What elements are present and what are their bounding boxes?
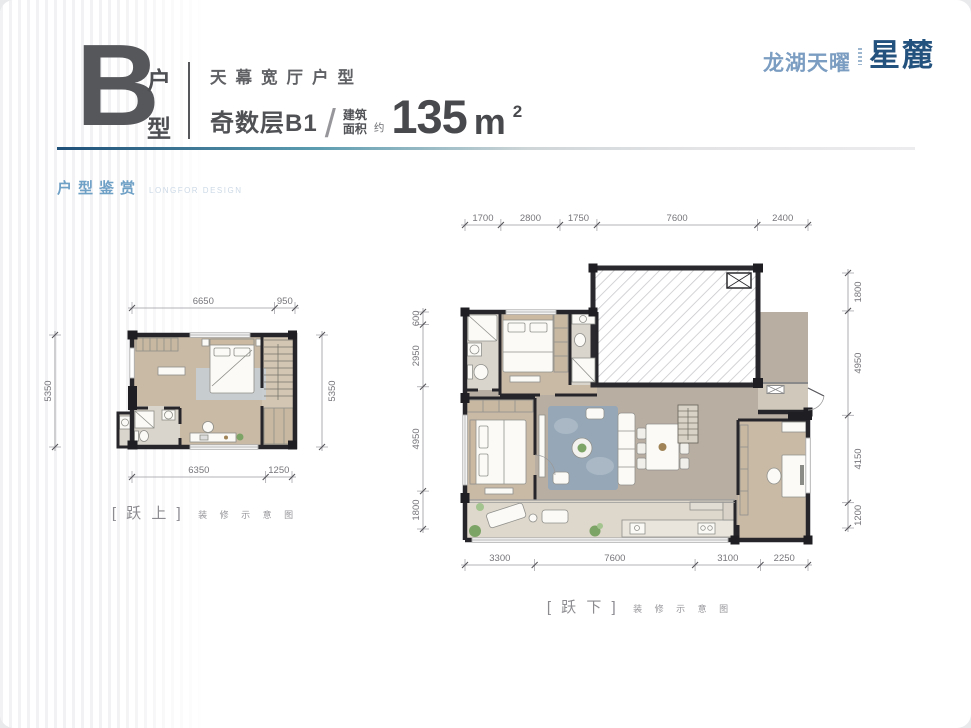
svg-text:3300: 3300 (489, 553, 510, 564)
area-label-stack: 建筑 面积 (343, 108, 367, 136)
lounge-chair (542, 510, 568, 523)
toilet (575, 334, 586, 347)
sink (470, 345, 479, 354)
svg-text:3100: 3100 (717, 553, 738, 564)
header-divider-rule (57, 147, 915, 150)
wardrobe (264, 408, 293, 444)
console-table (158, 367, 185, 375)
upper-plan-caption: [ 跃 上 ] 装 修 示 意 图 (40, 502, 370, 523)
toilet (474, 365, 488, 380)
unit-type-char-top: 户 (147, 61, 171, 96)
svg-text:1800: 1800 (411, 499, 422, 520)
armchair (553, 472, 569, 484)
lower-plan-caption: [ 跃 下 ] 装 修 示 意 图 (480, 596, 800, 617)
svg-text:6650: 6650 (193, 296, 214, 307)
floor-label: 奇数层B1 (210, 112, 318, 136)
section-heading: 户型鉴赏 LONGFOR DESIGN (57, 177, 242, 198)
upper-plan-note: 装 修 示 意 图 (198, 510, 298, 520)
svg-text:5350: 5350 (327, 380, 338, 401)
logo-seal-mark (858, 48, 862, 65)
lower-level-floorplan: 1700280017507600240033007600310022506002… (390, 200, 930, 640)
svg-text:1700: 1700 (472, 213, 493, 224)
svg-text:4150: 4150 (853, 448, 864, 469)
sink (580, 316, 587, 323)
bed (210, 339, 254, 393)
area-label-top: 建筑 (343, 108, 367, 122)
svg-text:2950: 2950 (411, 345, 422, 366)
toilet (140, 431, 149, 442)
master-bed (470, 420, 526, 484)
svg-text:4950: 4950 (853, 353, 864, 374)
plant (469, 525, 481, 537)
tv-console (539, 415, 545, 477)
desk-chair (203, 422, 214, 433)
closet (554, 314, 568, 372)
desk (190, 433, 236, 442)
desk-chair (767, 468, 781, 484)
area-value: 135 (391, 99, 466, 136)
svg-text:7600: 7600 (604, 553, 625, 564)
brand-logo: 龙湖天曜 星麓 (763, 40, 935, 77)
plant (237, 434, 244, 441)
header-vertical-divider (188, 62, 190, 139)
tall-cabinet (723, 502, 735, 520)
svg-text:2800: 2800 (520, 213, 541, 224)
svg-text:4950: 4950 (411, 428, 422, 449)
bookshelf (740, 425, 748, 515)
floorplan-poster: B 户 型 天幕宽厅户型 奇数层B1 / 建筑 面积 约 135 m 2 龙湖天… (0, 0, 971, 728)
svg-text:950: 950 (277, 296, 293, 307)
bench (510, 376, 540, 382)
upper-plan-name: [ 跃 上 ] (112, 505, 184, 522)
plant (578, 444, 587, 453)
nightstand (202, 339, 209, 346)
header-title-block: 天幕宽厅户型 奇数层B1 / 建筑 面积 约 135 m 2 (210, 64, 522, 136)
section-title: 户型鉴赏 (57, 177, 141, 198)
svg-text:2400: 2400 (772, 213, 793, 224)
svg-text:1200: 1200 (853, 505, 864, 526)
svg-text:5350: 5350 (43, 380, 54, 401)
upper-level-floorplan: 66509506350125053505350 (40, 288, 370, 528)
product-name: 星麓 (869, 40, 935, 71)
svg-text:7600: 7600 (667, 213, 688, 224)
svg-text:1250: 1250 (268, 465, 289, 476)
plant (476, 503, 484, 511)
brand-name: 龙湖天曜 (763, 47, 851, 77)
svg-text:600: 600 (411, 310, 422, 326)
unit-type-char-bottom: 型 (147, 109, 171, 144)
unit-type-vertical: 户 型 (147, 61, 171, 144)
area-unit: m (474, 108, 506, 136)
armchair (586, 408, 604, 419)
area-approx: 约 (374, 120, 385, 136)
svg-text:6350: 6350 (188, 465, 209, 476)
svg-text:1800: 1800 (853, 281, 864, 302)
lower-plan-note: 装 修 示 意 图 (633, 604, 733, 614)
area-label-bottom: 面积 (343, 122, 367, 136)
wardrobe (467, 400, 533, 412)
area-superscript: 2 (513, 102, 522, 122)
spec-slash: / (325, 109, 336, 139)
lower-plan-name: [ 跃 下 ] (547, 599, 619, 616)
svg-text:2250: 2250 (774, 553, 795, 564)
void-equipment-box (727, 273, 751, 288)
svg-text:1750: 1750 (568, 213, 589, 224)
bench (485, 488, 513, 494)
unit-tagline: 天幕宽厅户型 (210, 64, 522, 88)
sink (165, 411, 173, 419)
unit-spec-row: 奇数层B1 / 建筑 面积 约 135 m 2 (210, 99, 522, 136)
section-subtitle: LONGFOR DESIGN (149, 186, 242, 195)
